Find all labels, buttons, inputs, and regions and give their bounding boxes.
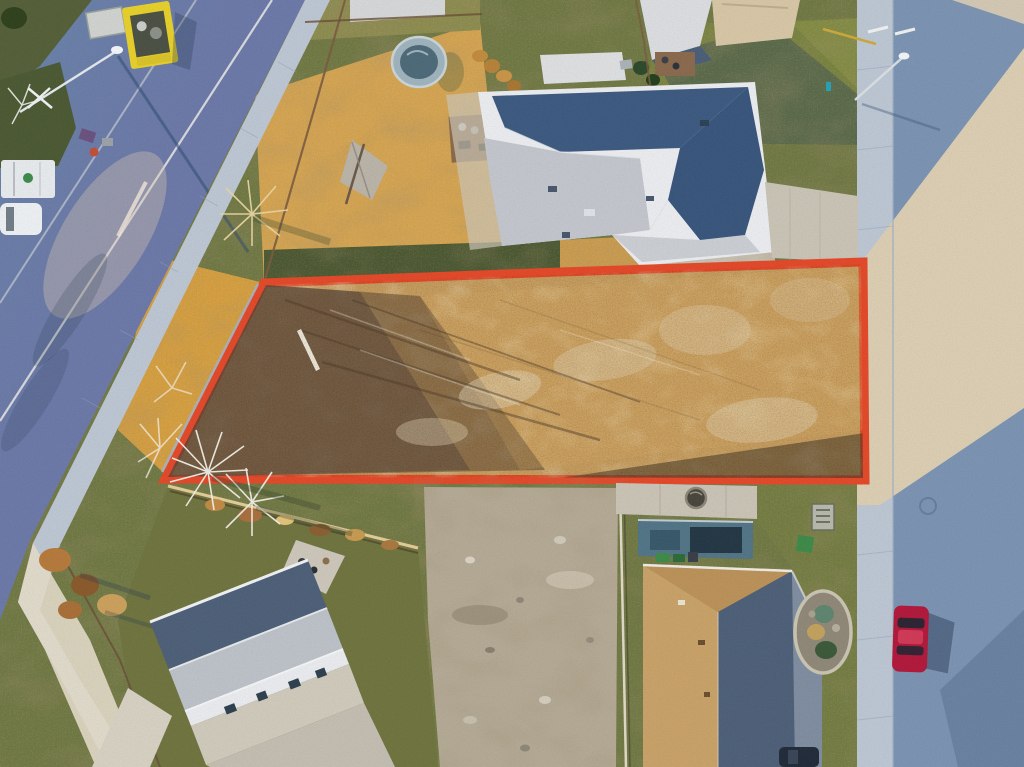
photo-grain-light bbox=[0, 0, 1024, 767]
aerial-photo-canvas bbox=[0, 0, 1024, 767]
aerial-photo bbox=[0, 0, 1024, 767]
